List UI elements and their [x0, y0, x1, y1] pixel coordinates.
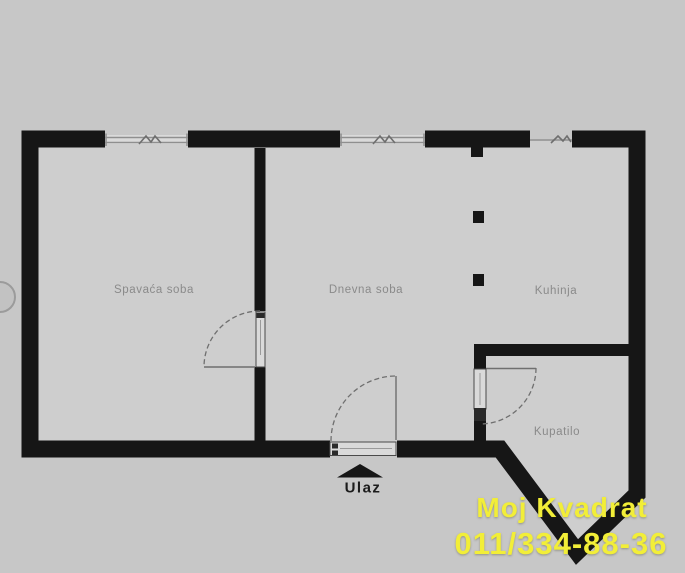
room-label-kitchen: Kuhinja [535, 285, 578, 297]
watermark-phone: 011/334-88-36 [455, 528, 668, 559]
watermark-brand: Moj Kvadrat [476, 494, 647, 522]
scan-artifact [0, 282, 15, 312]
wall-stub-kitchen [471, 147, 483, 157]
room-label-living-room: Dnevna soba [329, 284, 403, 296]
floor-plan-image: Spavaća soba Dnevna soba Kuhinja Kupatil… [0, 0, 685, 573]
room-label-bedroom: Spavaća soba [114, 284, 194, 296]
entrance-up-arrow-icon [337, 464, 383, 478]
entrance-label: Ulaz [345, 480, 382, 497]
column-2 [473, 274, 484, 286]
column-1 [473, 211, 484, 223]
room-label-bathroom: Kupatilo [534, 426, 580, 438]
